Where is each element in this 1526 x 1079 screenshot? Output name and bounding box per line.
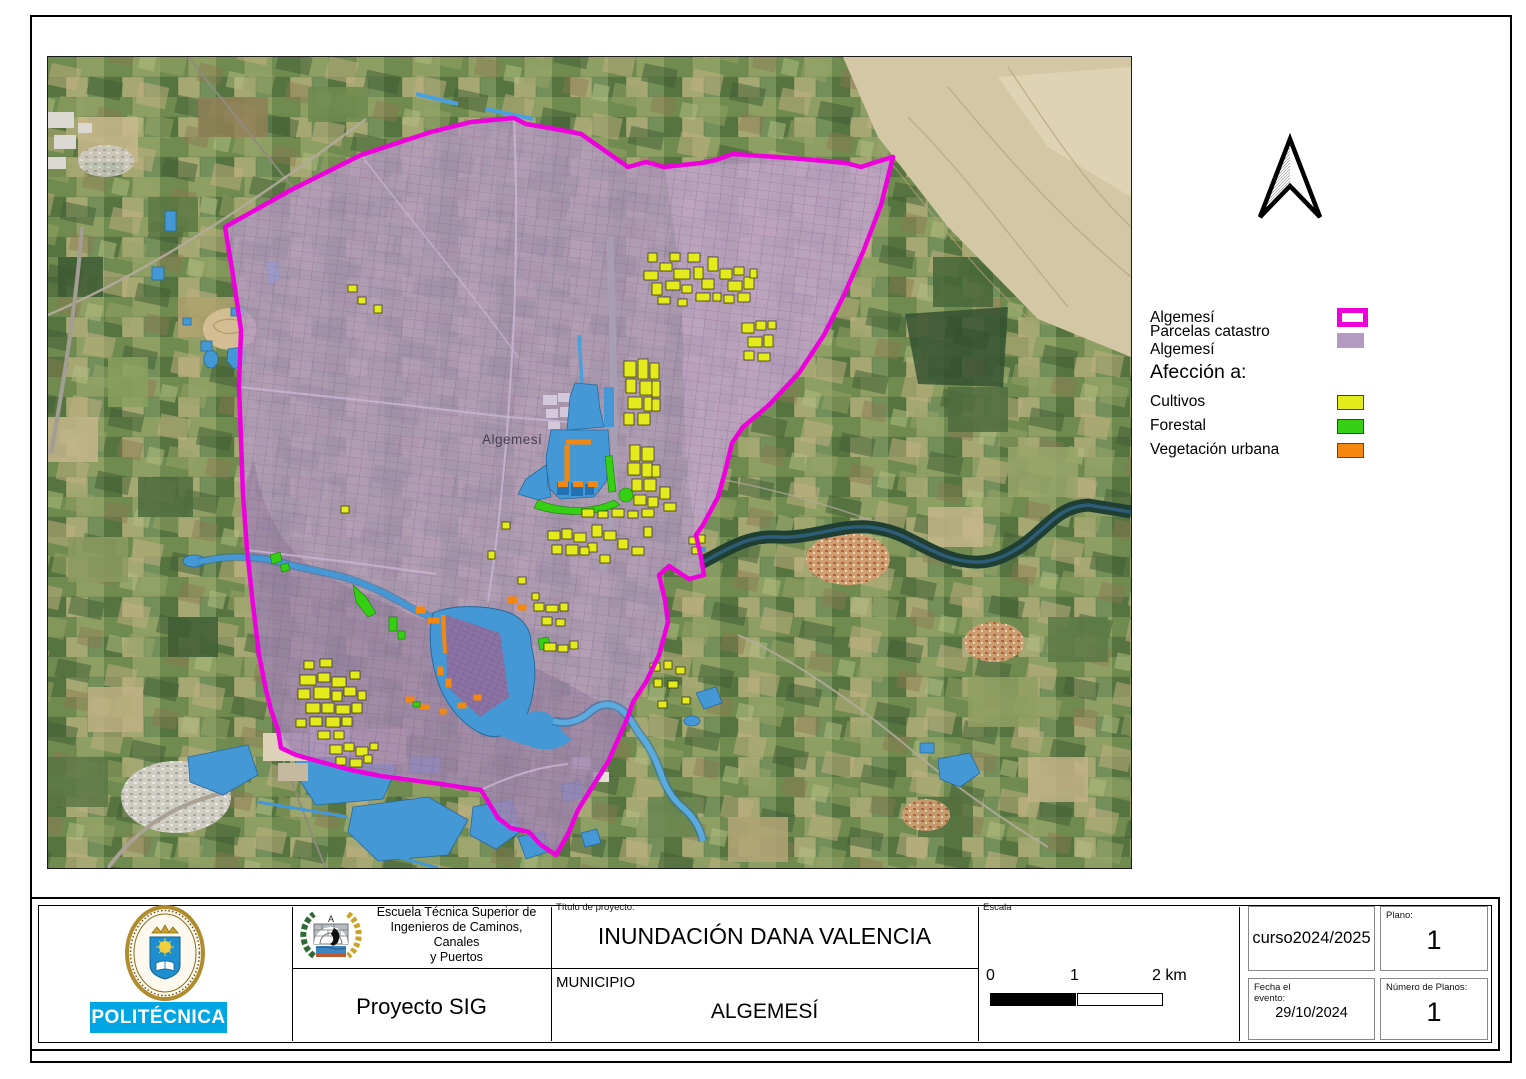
legend-item-parcelas: Parcelas catastro Algemesí [1150, 329, 1420, 352]
map-canvas: Algemesí [47, 56, 1132, 869]
svg-text:A: A [328, 914, 334, 924]
scale-bar-segment-white [1077, 993, 1163, 1006]
north-arrow-icon [1248, 133, 1332, 228]
town-east-1 [806, 533, 890, 585]
plan-value: 1 [1381, 925, 1487, 956]
event-date-box: Fecha el evento: 29/10/2024 [1248, 978, 1375, 1040]
plan-label: Plano: [1386, 910, 1413, 921]
upm-logo-cell: POLITÉCNICA [32, 899, 284, 1035]
legend-label: Vegetación urbana [1150, 441, 1337, 459]
scale-label: Escala [983, 902, 1012, 913]
scale-cell: Escala 0 1 2 km [978, 899, 1239, 1045]
scale-tick-1: 1 [1070, 967, 1079, 985]
scale-bar-segment-black [990, 993, 1076, 1006]
legend: Algemesí Parcelas catastro Algemesí Afec… [1150, 306, 1420, 462]
project-title: INUNDACIÓN DANA VALENCIA [551, 923, 978, 950]
plans-count-label: Número de Planos: [1386, 982, 1467, 993]
town-east-2 [964, 622, 1024, 662]
upm-seal-icon [120, 903, 210, 1003]
legend-item-cultivos: Cultivos [1150, 390, 1420, 414]
municipality-value: ALGEMESÍ [551, 1000, 978, 1024]
legend-swatch-vegetacion [1337, 443, 1364, 458]
school-cell: A Escuela Técnica Superior de Ingenieros… [292, 899, 551, 968]
project-name: Proyecto SIG [356, 994, 487, 1020]
divider [1239, 907, 1240, 1041]
title-block: POLITÉCNICA A Escuela Técnica Superior d… [30, 897, 1500, 1051]
qgis-print-layout: { "map": { "town_label": "Algemesí" }, "… [0, 0, 1526, 1079]
legend-section-title: Afección a: [1150, 361, 1420, 384]
legend-item-vegetacion: Vegetación urbana [1150, 438, 1420, 462]
project-title-cell: Título de proyecto: INUNDACIÓN DANA VALE… [551, 899, 978, 968]
legend-label: Forestal [1150, 417, 1337, 435]
event-date-label: Fecha el evento: [1254, 982, 1306, 1004]
legend-swatch-cultivos [1337, 395, 1364, 410]
municipality-label: MUNICIPIO [556, 974, 635, 991]
legend-label: Cultivos [1150, 393, 1337, 411]
legend-swatch-forestal [1337, 419, 1364, 434]
politecnica-banner: POLITÉCNICA [90, 1002, 227, 1033]
school-name: Escuela Técnica Superior de Ingenieros d… [366, 903, 547, 966]
course-value: curso2024/2025 [1252, 929, 1370, 948]
plans-count-value: 1 [1381, 997, 1487, 1028]
municipality-cell: MUNICIPIO ALGEMESÍ [551, 968, 978, 1045]
legend-label: Parcelas catastro Algemesí [1150, 323, 1337, 359]
town-southeast [902, 799, 950, 831]
project-title-label: Título de proyecto: [556, 902, 635, 913]
scale-tick-0: 0 [986, 967, 995, 985]
course-box: curso2024/2025 [1248, 906, 1375, 971]
scale-tick-2: 2 km [1152, 967, 1187, 985]
legend-swatch-boundary [1337, 308, 1368, 327]
map-town-label: Algemesí [482, 432, 542, 447]
plans-count-box: Número de Planos: 1 [1380, 978, 1488, 1040]
legend-item-forestal: Forestal [1150, 414, 1420, 438]
legend-swatch-parcels [1337, 333, 1364, 348]
caminos-school-logo-icon: A [300, 902, 362, 966]
project-name-cell: Proyecto SIG [292, 968, 551, 1045]
dark-forest-patch [905, 307, 1008, 387]
event-date-value: 29/10/2024 [1249, 1005, 1374, 1021]
map-svg: Algemesí [48, 57, 1131, 868]
plan-box: Plano: 1 [1380, 906, 1488, 971]
